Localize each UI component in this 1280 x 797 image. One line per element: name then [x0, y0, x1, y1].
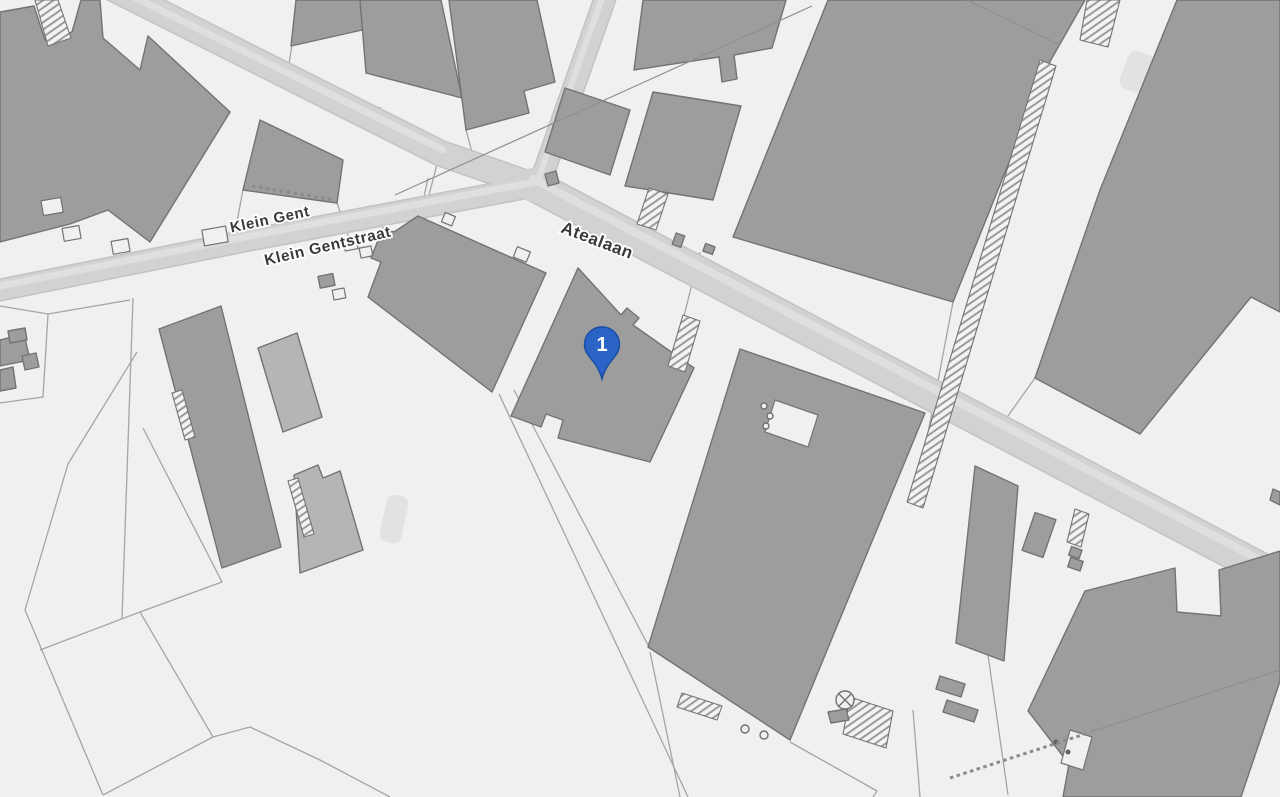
awning-hatch [677, 693, 722, 720]
building [243, 120, 343, 203]
awning-hatch [637, 188, 668, 230]
building [449, 0, 555, 130]
awning-hatch [668, 315, 700, 372]
building [258, 333, 322, 432]
awning-hatch [1067, 509, 1089, 547]
building [733, 0, 1085, 302]
map-canvas[interactable]: Klein Gent Klein Gentstraat Atealaan 1 [0, 0, 1280, 797]
building [625, 92, 741, 200]
building [360, 0, 462, 98]
marker-number: 1 [596, 334, 607, 356]
silo-symbol [836, 691, 854, 709]
building [1035, 0, 1280, 434]
building [1270, 489, 1280, 505]
building [956, 466, 1018, 661]
map-viewport[interactable]: Klein Gent Klein Gentstraat Atealaan 1 [0, 0, 1280, 797]
building [634, 0, 786, 82]
awning-hatch [1080, 0, 1120, 47]
surface-marking [378, 493, 409, 545]
building [159, 306, 281, 568]
building [368, 216, 546, 392]
